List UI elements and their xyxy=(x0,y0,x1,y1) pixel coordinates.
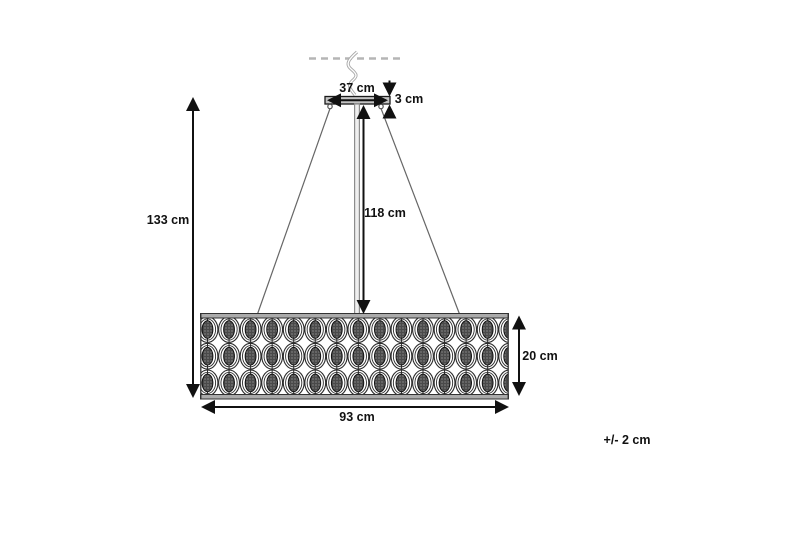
tolerance-note: +/- 2 cm xyxy=(604,434,651,447)
dim-label-rod-length: 118 cm xyxy=(364,207,406,220)
dim-label-shade-height: 20 cm xyxy=(522,350,557,363)
hanging-rod xyxy=(355,104,360,314)
dim-label-canopy-height: 3 cm xyxy=(395,93,424,106)
shade-top-frame xyxy=(201,314,509,319)
canopy-ring-right xyxy=(379,104,383,108)
dim-label-shade-width: 93 cm xyxy=(339,411,374,424)
canopy-ring-left xyxy=(328,104,332,108)
suspension-cable-left xyxy=(258,109,331,315)
dim-label-canopy-width: 37 cm xyxy=(339,82,374,95)
crystal-pattern xyxy=(197,316,520,396)
shade-bottom-frame xyxy=(201,395,509,400)
dim-label-total-height: 133 cm xyxy=(147,214,189,227)
dimension-diagram: 37 cm 3 cm 118 cm 133 cm 20 cm 93 cm +/-… xyxy=(0,0,800,533)
lamp-shade xyxy=(197,314,520,400)
lamp-line-art xyxy=(0,0,800,533)
